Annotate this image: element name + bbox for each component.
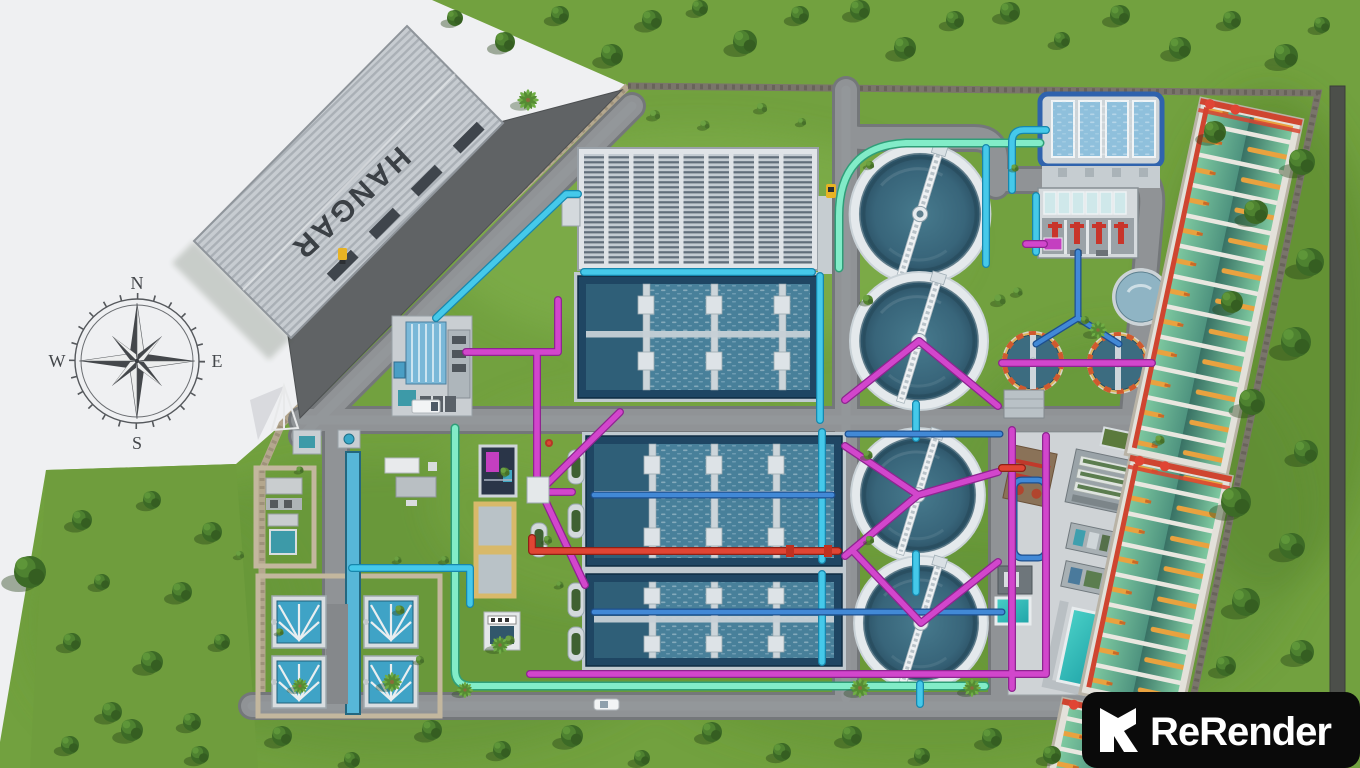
filter-basin [1040, 94, 1162, 188]
chemical-dosing-building [480, 446, 516, 496]
screening-building [1038, 188, 1138, 258]
blower-building [1004, 390, 1044, 418]
outer-boundary-wall [1330, 86, 1345, 714]
rerender-brand-text: ReRender [1150, 710, 1331, 754]
tan-tanks [476, 504, 514, 596]
utility-buggy [826, 184, 836, 198]
lift-pump [338, 430, 360, 448]
compass-north-label: N [131, 273, 144, 293]
rerender-watermark: ReRender [1082, 692, 1360, 768]
site-render-canvas: HANGAR [0, 0, 1360, 768]
open-channel [346, 452, 360, 714]
truck [412, 400, 440, 413]
car [594, 699, 619, 710]
pipe-junction-box [527, 477, 549, 503]
aeration-basin-upper [574, 272, 822, 402]
valve-pad [293, 430, 321, 454]
louvered-roof-building [562, 148, 832, 274]
treatment-plant-aerial-render: HANGAR [0, 0, 1360, 768]
compass-west-label: W [49, 351, 66, 371]
compass-south-label: S [132, 433, 142, 453]
compass-east-label: E [212, 351, 223, 371]
aeration-basin-lower [568, 570, 846, 670]
